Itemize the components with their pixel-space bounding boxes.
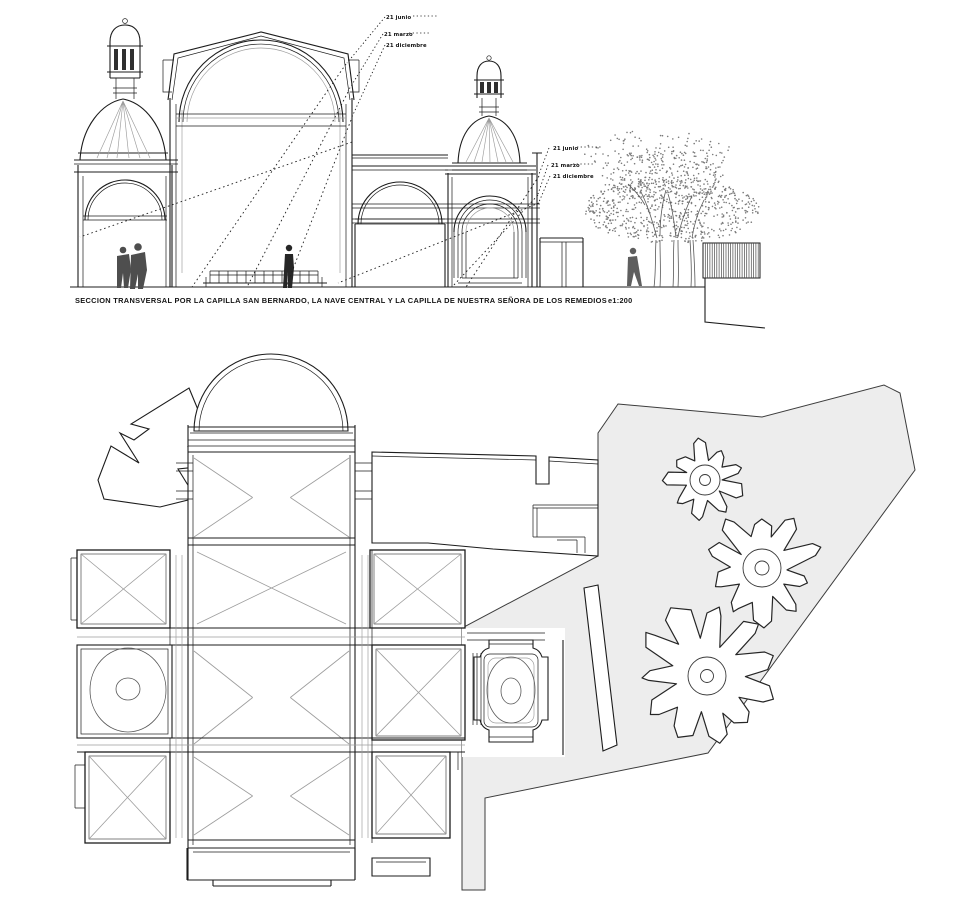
sun-label: 21 junio	[553, 146, 578, 152]
caption: SECCION TRANSVERSAL POR LA CAPILLA SAN B…	[75, 296, 633, 305]
nave-body	[188, 425, 355, 886]
sun-annotations-lower: 21 junio 21 marzo 21 diciembre	[538, 146, 601, 202]
chapel-san-bernardo-plan	[77, 645, 172, 738]
section-view: 21 junio 21 marzo 21 diciembre 21 junio …	[70, 15, 765, 328]
right-dome-tower	[445, 56, 536, 287]
tree-branches	[628, 184, 704, 238]
finial-knob	[487, 56, 491, 60]
finial-knob	[123, 19, 128, 24]
floor-plan	[71, 354, 915, 890]
sun-label: 21 diciembre	[386, 43, 427, 49]
sun-annotations-upper: 21 junio 21 marzo 21 diciembre	[347, 15, 437, 119]
sun-rays	[80, 64, 539, 287]
nave-figure	[283, 245, 294, 288]
fence-hatch	[703, 243, 760, 278]
sun-label: 21 diciembre	[553, 174, 594, 180]
lantern-slots	[114, 49, 134, 70]
chapel-remedios-plan	[473, 640, 548, 742]
sun-label: 21 junio	[386, 15, 411, 21]
sun-label: 21 marzo	[551, 163, 580, 169]
section-caption: SECCION TRANSVERSAL POR LA CAPILLA SAN B…	[75, 296, 607, 305]
pews	[203, 271, 327, 287]
people-silhouettes	[117, 243, 147, 289]
left-dome-tower	[74, 19, 178, 287]
lantern-slots	[480, 82, 498, 93]
sun-label: 21 marzo	[384, 32, 413, 38]
annex-plan	[372, 452, 598, 556]
nave-section	[163, 32, 359, 288]
scale-label: e1:200	[608, 296, 633, 305]
side-chapel-section	[352, 155, 540, 287]
tree-trunks	[654, 240, 695, 287]
dome-ribs	[97, 101, 150, 158]
architectural-drawing-svg: 21 junio 21 marzo 21 diciembre 21 junio …	[0, 0, 960, 900]
walking-figure	[627, 248, 642, 286]
tree-canopy-dots	[584, 131, 760, 243]
architectural-sheet: 21 junio 21 marzo 21 diciembre 21 junio …	[0, 0, 960, 900]
